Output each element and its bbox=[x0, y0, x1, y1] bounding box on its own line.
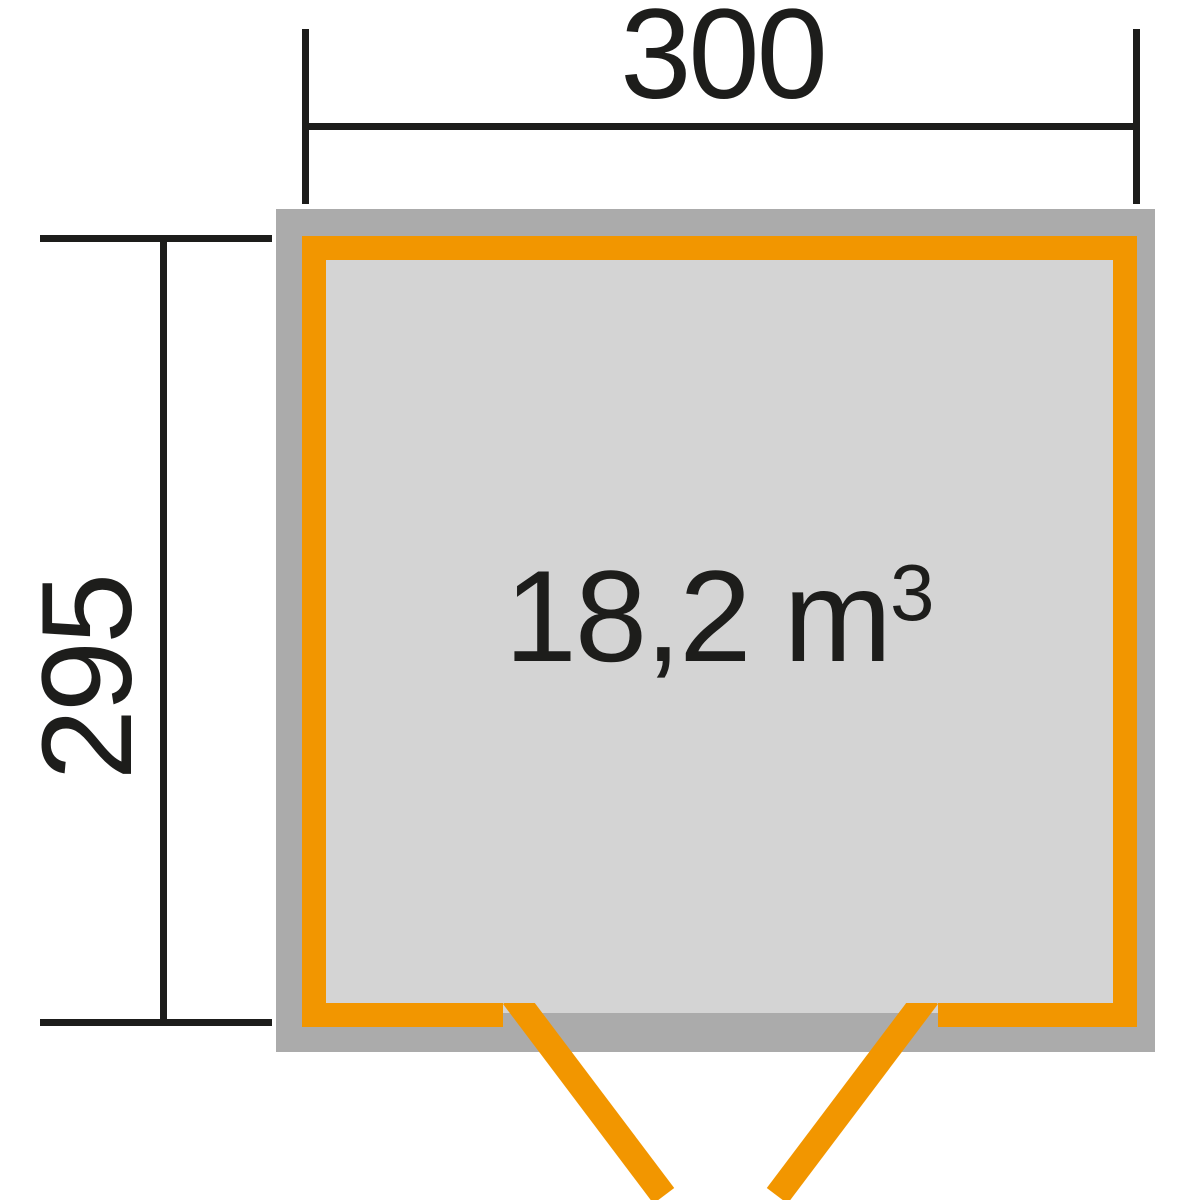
door-opening-floor bbox=[503, 1003, 938, 1013]
volume-superscript: 3 bbox=[890, 548, 935, 637]
depth-dimension-label: 295 bbox=[22, 528, 154, 828]
shed-floorplan-diagram: 300 295 18,2 m3 bbox=[0, 0, 1200, 1200]
volume-label: 18,2 m3 bbox=[326, 551, 1113, 681]
depth-dimension-tick-bottom bbox=[40, 1019, 272, 1026]
door-opening-edge bbox=[503, 1013, 938, 1027]
volume-value: 18,2 m bbox=[505, 543, 890, 689]
depth-dimension-tick-top bbox=[40, 235, 272, 242]
depth-dimension-line bbox=[160, 238, 167, 1022]
width-dimension-label: 300 bbox=[305, 0, 1140, 119]
